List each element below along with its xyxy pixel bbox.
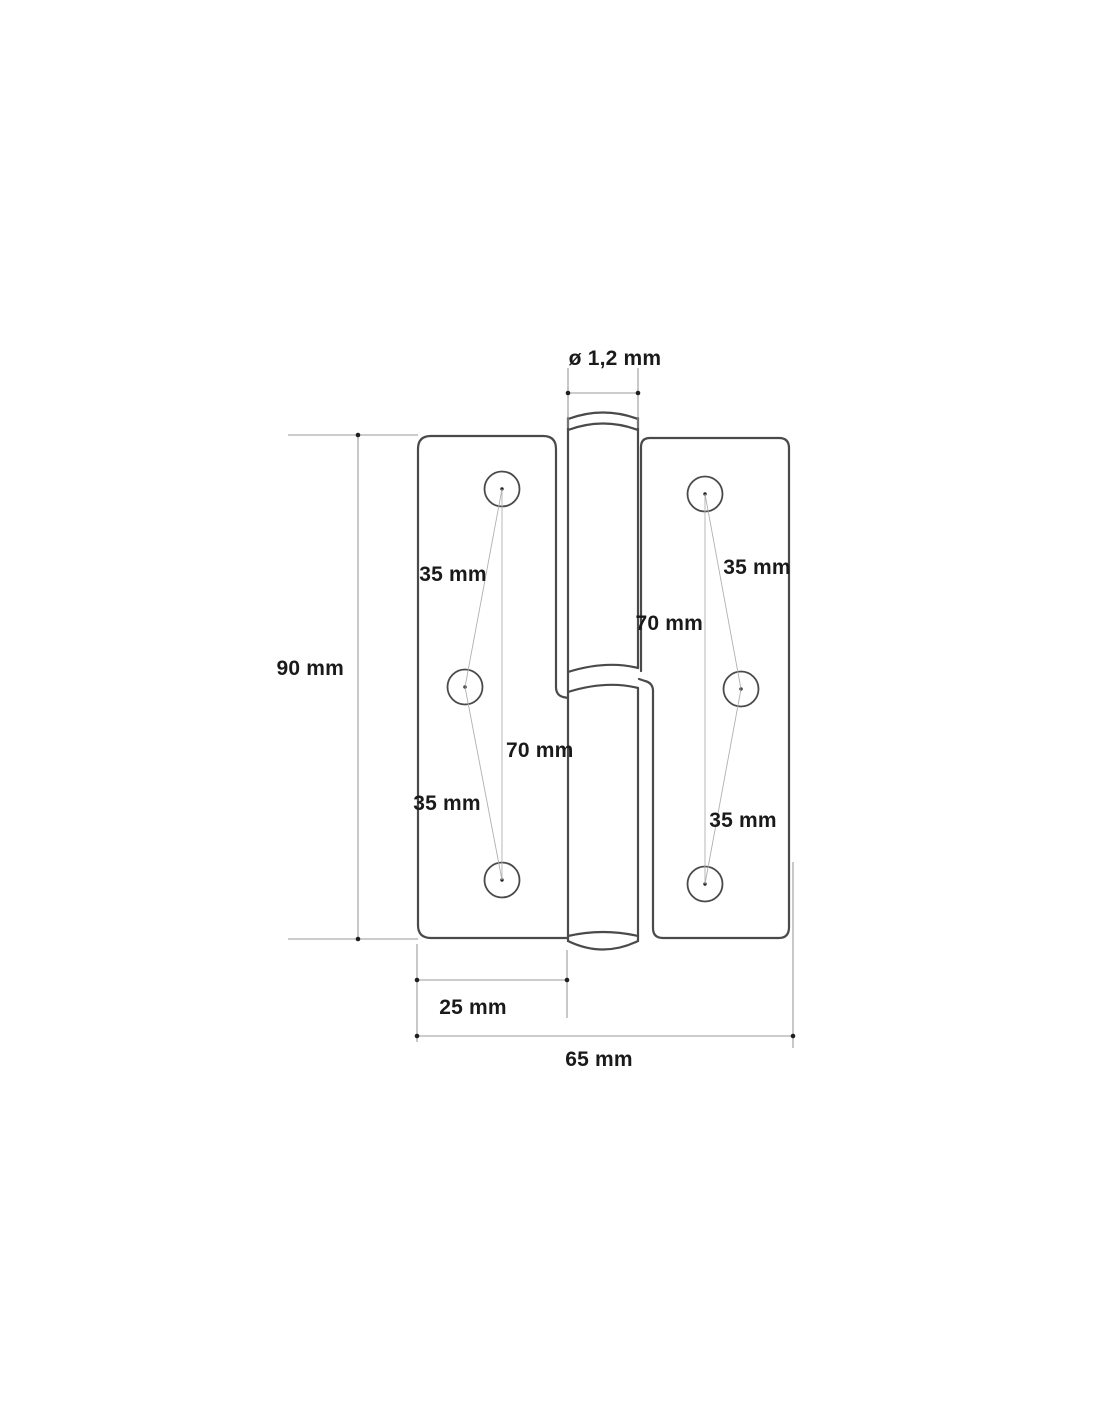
dim-arrow-dot: [356, 937, 361, 942]
dim-arrow-dot: [415, 1034, 420, 1039]
leader-right-middle-to-bottom: [705, 689, 741, 884]
hinge-diagram-svg: ø 1,2 mm 90 mm 35 mm 35 mm 70 mm 35 mm 3…: [0, 0, 1100, 1422]
left-hole-spacing-top-label: 35 mm: [419, 563, 487, 586]
leader-left-middle-to-bottom: [465, 687, 502, 880]
dim-arrow-dot: [415, 978, 420, 983]
dim-leaf-width: 25 mm: [415, 944, 570, 1042]
leader-right-top-to-middle: [705, 494, 741, 689]
pin-head-cap-bottom-arc: [568, 424, 638, 431]
left-leaf-outline: [418, 436, 568, 938]
right-leaf-outline: [639, 438, 789, 938]
barrel-bottom-cap-arc: [568, 941, 638, 950]
total-width-label: 65 mm: [565, 1048, 633, 1071]
dim-arrow-dot: [791, 1034, 796, 1039]
dim-arrow-dot: [636, 391, 641, 396]
pin-head-cap-top-arc: [568, 413, 638, 420]
left-hole-span-label: 70 mm: [506, 739, 574, 762]
barrel-bottom-rim-arc: [568, 932, 638, 936]
right-hole-spacing-top-label: 35 mm: [723, 556, 791, 579]
dim-arrow-dot: [565, 978, 570, 983]
right-hole-spacing-bottom-label: 35 mm: [709, 809, 777, 832]
right-hole-span-label: 70 mm: [635, 612, 703, 635]
dim-total-height: 90 mm: [276, 433, 418, 942]
leader-left-top-to-middle: [465, 489, 502, 687]
pin-diameter-label: ø 1,2 mm: [569, 347, 662, 370]
hinge-body: [418, 413, 789, 950]
dim-right-hole-spacings: 35 mm 35 mm 70 mm: [635, 556, 790, 832]
knuckle-seam-lower-arc: [568, 685, 638, 692]
dim-total-width: 65 mm: [415, 862, 796, 1071]
hinge-technical-drawing: ø 1,2 mm 90 mm 35 mm 35 mm 70 mm 35 mm 3…: [0, 0, 1100, 1422]
dim-arrow-dot: [566, 391, 571, 396]
dim-arrow-dot: [356, 433, 361, 438]
hole-leader-lines: [465, 489, 741, 884]
leaf-width-label: 25 mm: [439, 996, 507, 1019]
left-hole-spacing-bottom-label: 35 mm: [413, 792, 481, 815]
knuckle-seam-upper-arc: [568, 665, 638, 672]
total-height-label: 90 mm: [276, 657, 344, 680]
pin-knuckle-barrel: [568, 413, 638, 950]
dim-left-hole-spacings: 35 mm 35 mm 70 mm: [413, 563, 573, 815]
